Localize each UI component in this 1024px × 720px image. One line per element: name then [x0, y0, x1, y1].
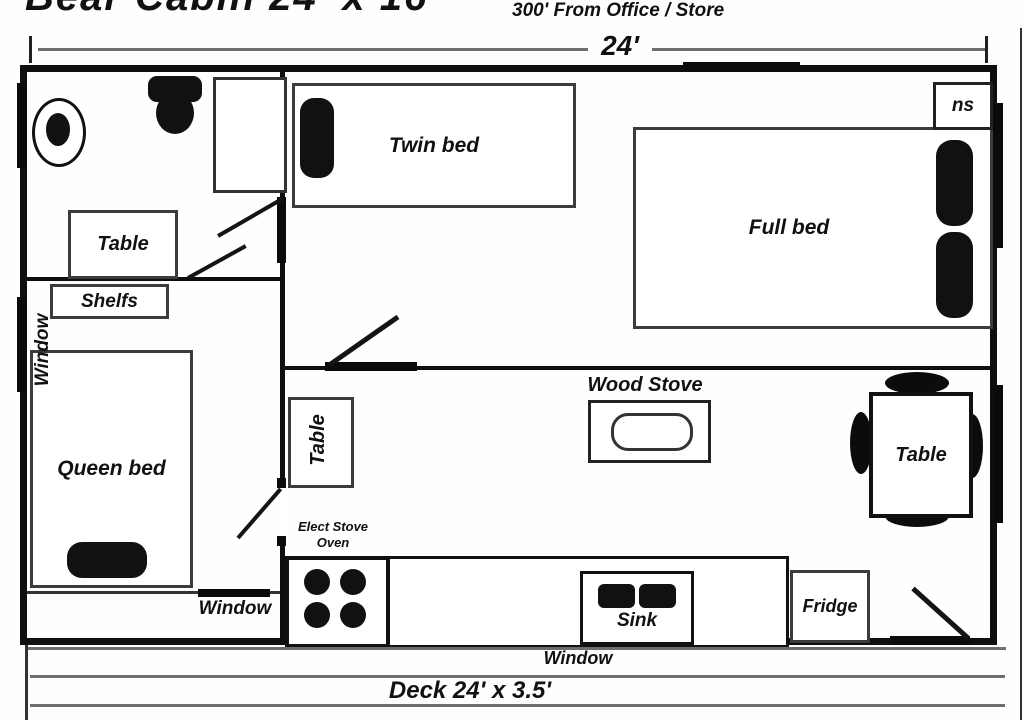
burner-icon-2	[340, 569, 366, 595]
bathroom-sink-drain-icon	[46, 113, 70, 146]
range-label-line2: Oven	[283, 535, 383, 551]
shelfs-box: Shelfs	[50, 284, 169, 319]
full-bed-pillow-icon-2	[936, 232, 973, 318]
fridge-label: Fridge	[802, 596, 857, 617]
wood-stove-label: Wood Stove	[560, 374, 730, 397]
burner-icon-1	[304, 569, 330, 595]
range-label-line1: Elect Stove	[283, 519, 383, 535]
bathroom-table-label: Table	[97, 233, 149, 256]
dimension-line-right	[652, 48, 985, 51]
dining-table: Table	[869, 392, 973, 518]
shower-stall	[213, 77, 287, 193]
burner-icon-4	[340, 602, 366, 628]
dimension-line-left	[38, 48, 588, 51]
fridge: Fridge	[790, 570, 870, 643]
kitchen-sink: Sink	[580, 571, 694, 645]
bathroom-table: Table	[68, 210, 178, 279]
full-bed-pillow-icon-1	[936, 140, 973, 226]
sink-basin-icon-left	[598, 584, 635, 608]
dimension-tick-left	[29, 36, 32, 63]
deck-left-border	[25, 645, 28, 720]
window-right-living	[993, 385, 1003, 523]
window-left-label: Window	[32, 307, 54, 393]
toilet-bowl-icon	[156, 92, 194, 134]
dining-table-label: Table	[895, 444, 947, 467]
nightstand-label: ns	[952, 95, 974, 117]
wood-stove-door-icon	[611, 413, 693, 451]
living-side-table-label: Table	[307, 400, 329, 480]
window-bedroom-bottom	[198, 589, 270, 597]
nightstand-box: ns	[933, 82, 993, 130]
bunkroom-door-opening	[325, 362, 417, 371]
bathroom-door-opening	[277, 197, 286, 263]
deck-label: Deck 24' x 3.5'	[170, 677, 770, 705]
sink-label: Sink	[617, 610, 657, 632]
burner-icon-3	[304, 602, 330, 628]
dimension-width-label: 24'	[588, 30, 652, 62]
twin-bed-label: Twin bed	[389, 134, 479, 158]
electric-stove	[285, 556, 390, 648]
floor-plan: Bear Cabin 24' x 16' 300' From Office / …	[0, 0, 1024, 720]
queen-bed-label: Queen bed	[57, 457, 166, 481]
window-bathroom	[17, 83, 27, 168]
dimension-tick-right	[985, 36, 988, 63]
window-top	[683, 62, 800, 72]
page-right-border	[1020, 28, 1022, 720]
window-bedroom-left	[17, 297, 27, 392]
window-right-bunkroom	[993, 103, 1003, 248]
entry-door-opening	[890, 636, 970, 645]
sink-basins-icon	[598, 584, 676, 608]
twin-bed-pillow-icon	[300, 98, 334, 178]
full-bed-label: Full bed	[749, 216, 878, 240]
distance-note: 300' From Office / Store	[512, 0, 724, 22]
shelfs-label: Shelfs	[81, 291, 138, 313]
sink-basin-icon-right	[639, 584, 676, 608]
chair-icon-top	[885, 372, 949, 394]
twin-bed: Twin bed	[292, 83, 576, 208]
window-bedroom-bottom-label: Window	[185, 598, 285, 620]
range-label: Elect Stove Oven	[283, 519, 383, 552]
deck-line-top	[26, 647, 1006, 650]
window-kitchen-label: Window	[528, 648, 628, 669]
queen-bed-pillow-icon	[67, 542, 147, 578]
